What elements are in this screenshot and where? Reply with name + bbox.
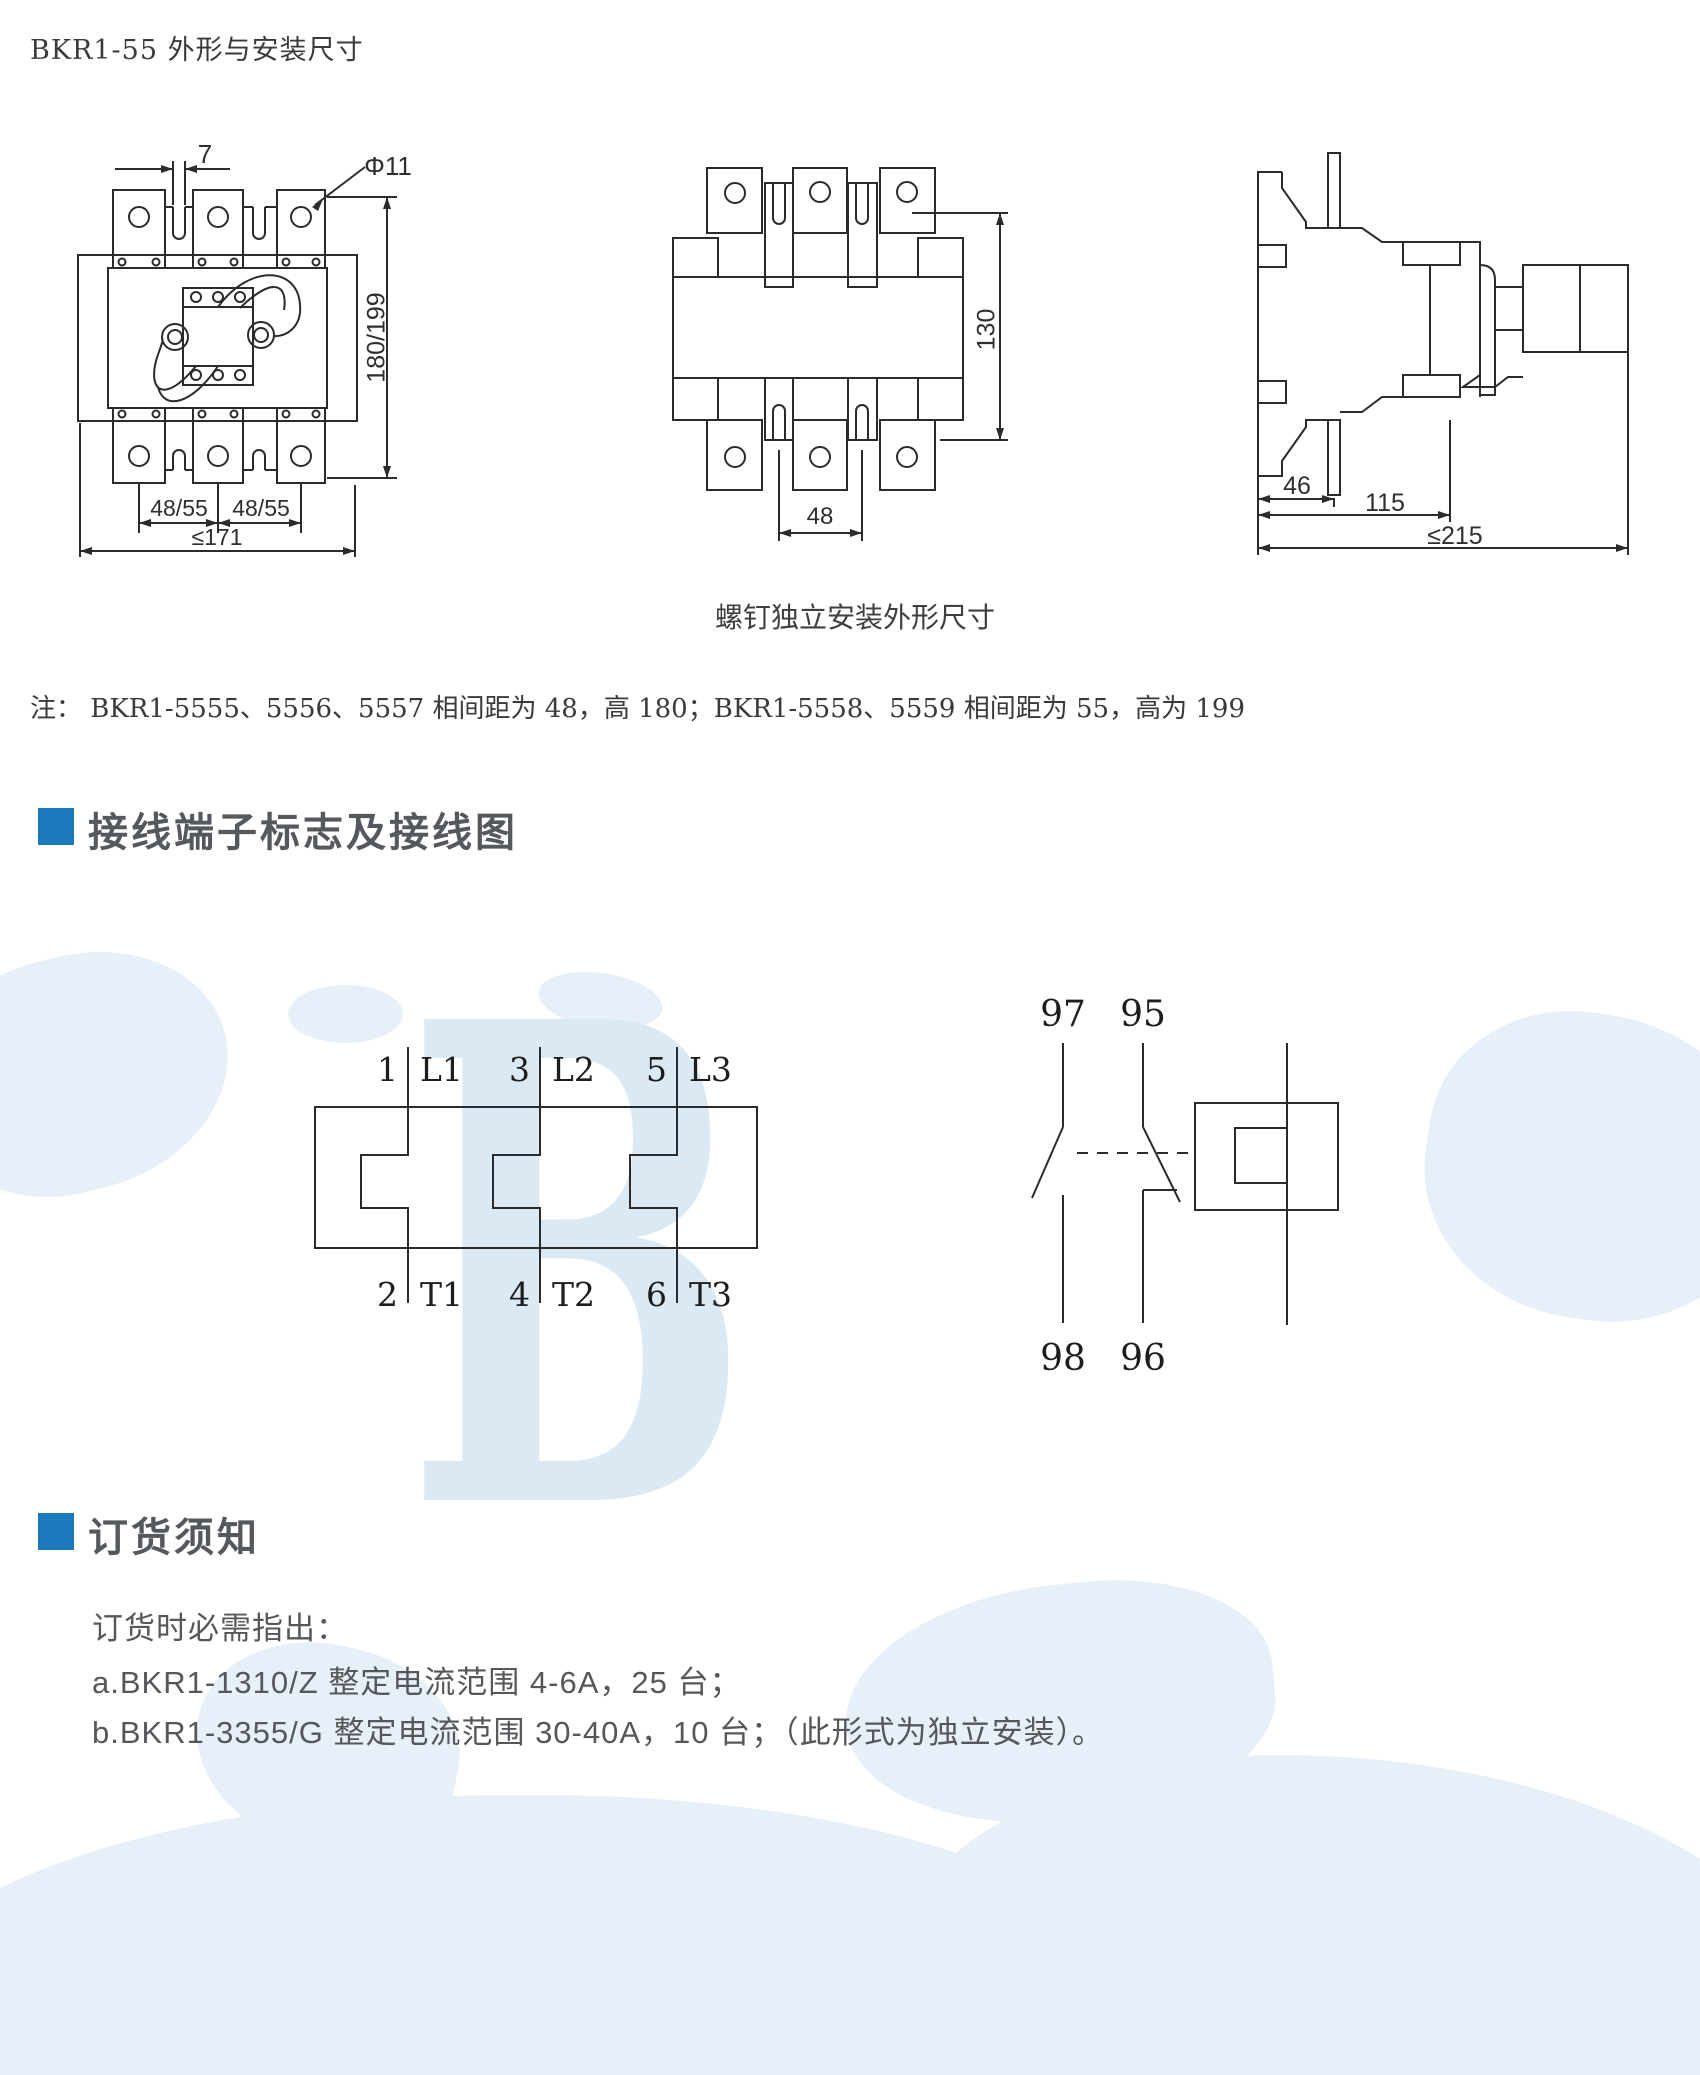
- dim-depth-a: 46: [1272, 472, 1322, 501]
- front-view-drawing: 7 Φ11 180/199 48/55 48/55 ≤171: [60, 105, 410, 575]
- dim-depth-b: 115: [1350, 489, 1420, 518]
- ordering-item-b: b.BKR1-3355/G 整定电流范围 30-40A，10 台；（此形式为独立…: [92, 1707, 1104, 1752]
- pole2-bottom-label: T2: [552, 1275, 595, 1314]
- aux-no-top-label: 97: [1038, 994, 1088, 1035]
- dim-depth-total: ≤215: [1410, 522, 1500, 551]
- drawing-note: 注： BKR1-5555、5556、5557 相间距为 48，高 180；BKR…: [30, 688, 1630, 725]
- side-view-svg: [1250, 130, 1690, 570]
- aux-contact-diagram: 97 95 98 96: [1020, 990, 1380, 1390]
- map-shape: [0, 1960, 1700, 2075]
- pole3-top-num: 5: [633, 1050, 667, 1089]
- dim-pitch-left: 48/55: [142, 495, 216, 522]
- dim-pitch-right: 48/55: [224, 495, 298, 522]
- main-terminal-diagram: 1 L1 3 L2 5 L3 2 T1 4 T2 6 T3: [290, 1030, 850, 1320]
- back-view-drawing: 130 48: [650, 135, 1050, 565]
- dim-top-gap: 7: [190, 139, 220, 170]
- pole1-bottom-label: T1: [420, 1275, 463, 1314]
- aux-nc-bottom-label: 96: [1118, 1338, 1168, 1379]
- wiring-section-title: 接线端子标志及接线图: [88, 800, 518, 858]
- aux-no-bottom-label: 98: [1038, 1338, 1088, 1379]
- dim-mount-pitch: 48: [798, 503, 842, 531]
- dim-hole-diameter: Φ11: [360, 151, 416, 182]
- dim-height: 180/199: [363, 283, 392, 393]
- pole1-top-num: 1: [364, 1050, 398, 1089]
- pole3-bottom-label: T3: [689, 1275, 732, 1314]
- pole2-top-label: L2: [552, 1050, 595, 1089]
- map-shape: [1403, 990, 1700, 1345]
- pole3-top-label: L3: [689, 1050, 732, 1089]
- ordering-section-title: 订货须知: [88, 1505, 260, 1563]
- aux-nc-top-label: 95: [1118, 994, 1168, 1035]
- drawing-caption: 螺钉独立安装外形尺寸: [530, 596, 1180, 636]
- ordering-item-a: a.BKR1-1310/Z 整定电流范围 4-6A，25 台；: [92, 1657, 741, 1702]
- pole3-bottom-num: 6: [633, 1275, 667, 1314]
- pole2-bottom-num: 4: [496, 1275, 530, 1314]
- dim-mount-height: 130: [973, 300, 1002, 360]
- map-shape: [0, 922, 254, 1223]
- ordering-intro: 订货时必需指出：: [92, 1603, 348, 1648]
- page-title: BKR1-55 外形与安装尺寸: [30, 28, 364, 67]
- pole1-top-label: L1: [420, 1050, 463, 1089]
- pole1-bottom-num: 2: [364, 1275, 398, 1314]
- datasheet-page: B BKR1-55 外形与安装尺寸: [0, 0, 1700, 2075]
- aux-contact-svg: [1020, 990, 1380, 1390]
- section-bullet-square: [38, 1513, 74, 1550]
- section-bullet-square: [38, 808, 74, 845]
- pole2-top-num: 3: [496, 1050, 530, 1089]
- dim-max-width: ≤171: [182, 524, 252, 551]
- side-view-drawing: 46 115 ≤215: [1250, 130, 1690, 570]
